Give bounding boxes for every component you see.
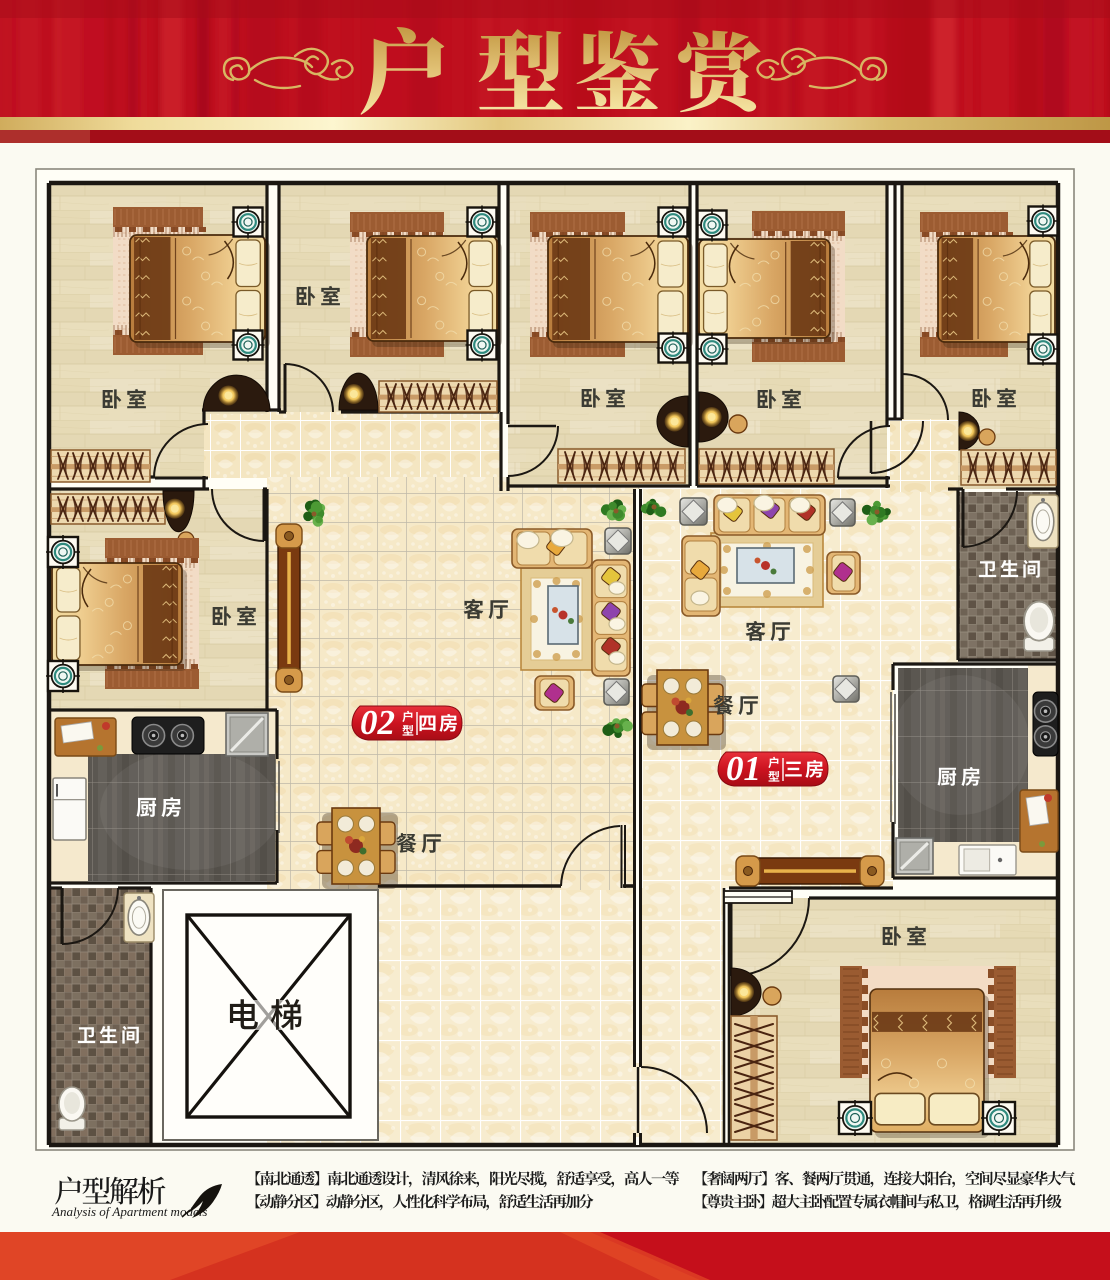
svg-text:02: 02 xyxy=(360,703,395,742)
svg-text:Analysis of Apartment models: Analysis of Apartment models xyxy=(51,1204,207,1219)
svg-text:01: 01 xyxy=(726,749,761,788)
